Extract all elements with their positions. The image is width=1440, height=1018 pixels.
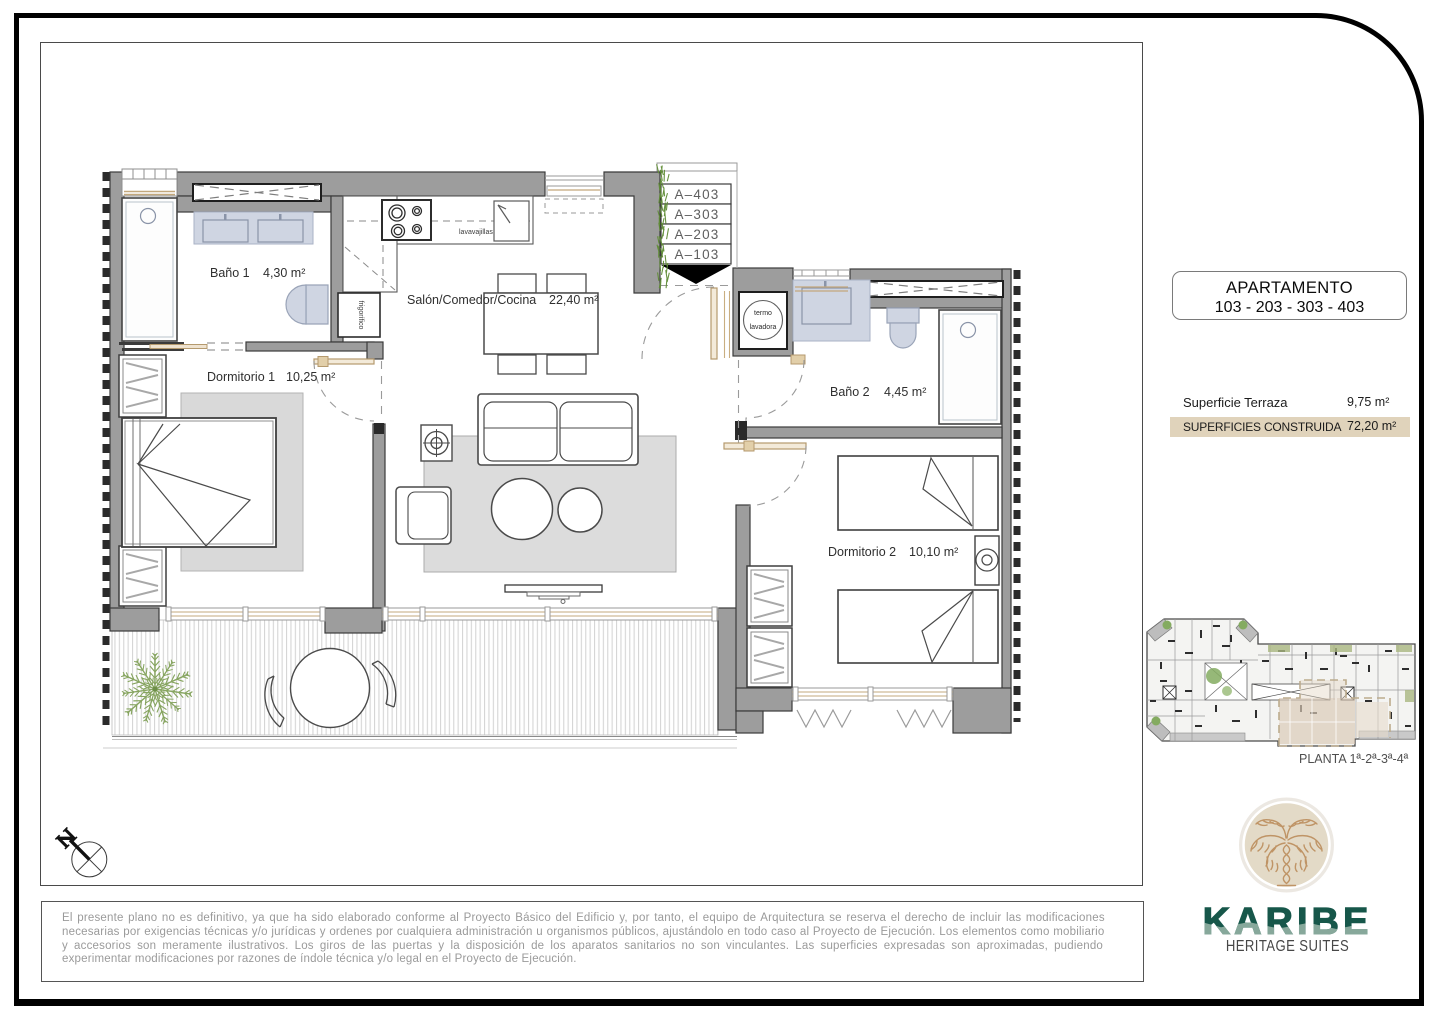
svg-text:A–403: A–403 (674, 187, 719, 202)
svg-text:A–303: A–303 (674, 207, 719, 222)
svg-text:lavavajillas: lavavajillas (459, 229, 493, 236)
svg-text:Dormitorio 2: Dormitorio 2 (828, 545, 896, 559)
svg-text:A–103: A–103 (674, 247, 719, 262)
svg-text:termo: termo (754, 310, 772, 317)
svg-text:4,30 m²: 4,30 m² (263, 266, 305, 280)
svg-text:4,45 m²: 4,45 m² (884, 385, 926, 399)
svg-text:Baño 1: Baño 1 (210, 266, 250, 280)
svg-text:22,40 m²: 22,40 m² (549, 293, 598, 307)
svg-text:10,25 m²: 10,25 m² (286, 370, 335, 384)
svg-text:frigorífico: frigorífico (357, 301, 364, 330)
svg-text:lavadora: lavadora (750, 324, 777, 331)
svg-text:Dormitorio 1: Dormitorio 1 (207, 370, 275, 384)
svg-text:Baño 2: Baño 2 (830, 385, 870, 399)
svg-text:Salón/Comedor/Cocina: Salón/Comedor/Cocina (407, 293, 536, 307)
svg-text:10,10 m²: 10,10 m² (909, 545, 958, 559)
svg-text:A–203: A–203 (674, 227, 719, 242)
